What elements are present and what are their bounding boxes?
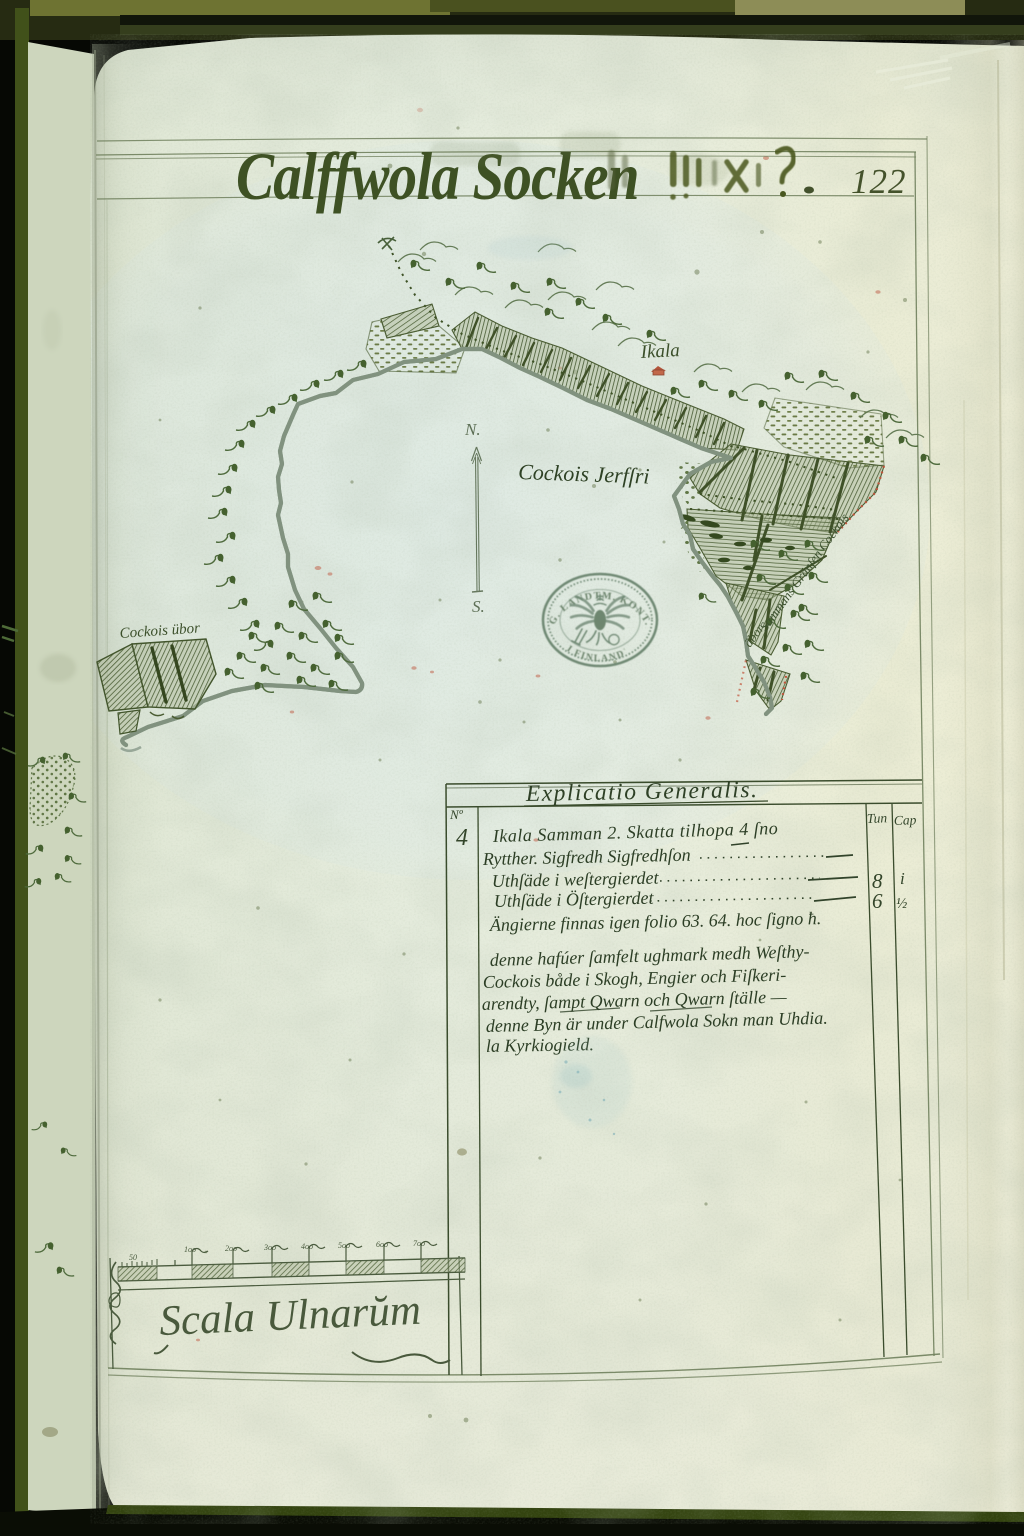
svg-text:1oo: 1oo <box>184 1245 196 1254</box>
svg-text:Uthſäde i Öſtergierdet: Uthſäde i Öſtergierdet <box>494 888 655 911</box>
svg-text:Cockois Jerfſri: Cockois Jerfſri <box>518 459 650 489</box>
svg-text:122: 122 <box>851 162 907 201</box>
svg-text:4: 4 <box>456 825 468 851</box>
svg-text:4oo: 4oo <box>301 1242 313 1251</box>
svg-text:Cap: Cap <box>894 812 917 828</box>
svg-text:½: ½ <box>896 896 907 912</box>
svg-text:6: 6 <box>872 889 883 913</box>
svg-text:Nº: Nº <box>449 807 464 822</box>
svg-text:i: i <box>900 869 905 888</box>
svg-text:3oo: 3oo <box>263 1243 276 1252</box>
svg-text:S.: S. <box>472 597 485 616</box>
svg-text:5oo: 5oo <box>338 1241 350 1250</box>
svg-text:Ikala: Ikala <box>639 340 680 363</box>
svg-text:6oo: 6oo <box>376 1240 388 1249</box>
svg-text:N.: N. <box>464 420 481 439</box>
svg-text:50: 50 <box>129 1253 137 1262</box>
svg-text:Tun: Tun <box>867 810 888 826</box>
svg-text:7oo: 7oo <box>413 1239 425 1248</box>
svg-text:2oo: 2oo <box>225 1244 237 1253</box>
svg-text:Explicatio Generalis.: Explicatio Generalis. <box>525 777 759 807</box>
